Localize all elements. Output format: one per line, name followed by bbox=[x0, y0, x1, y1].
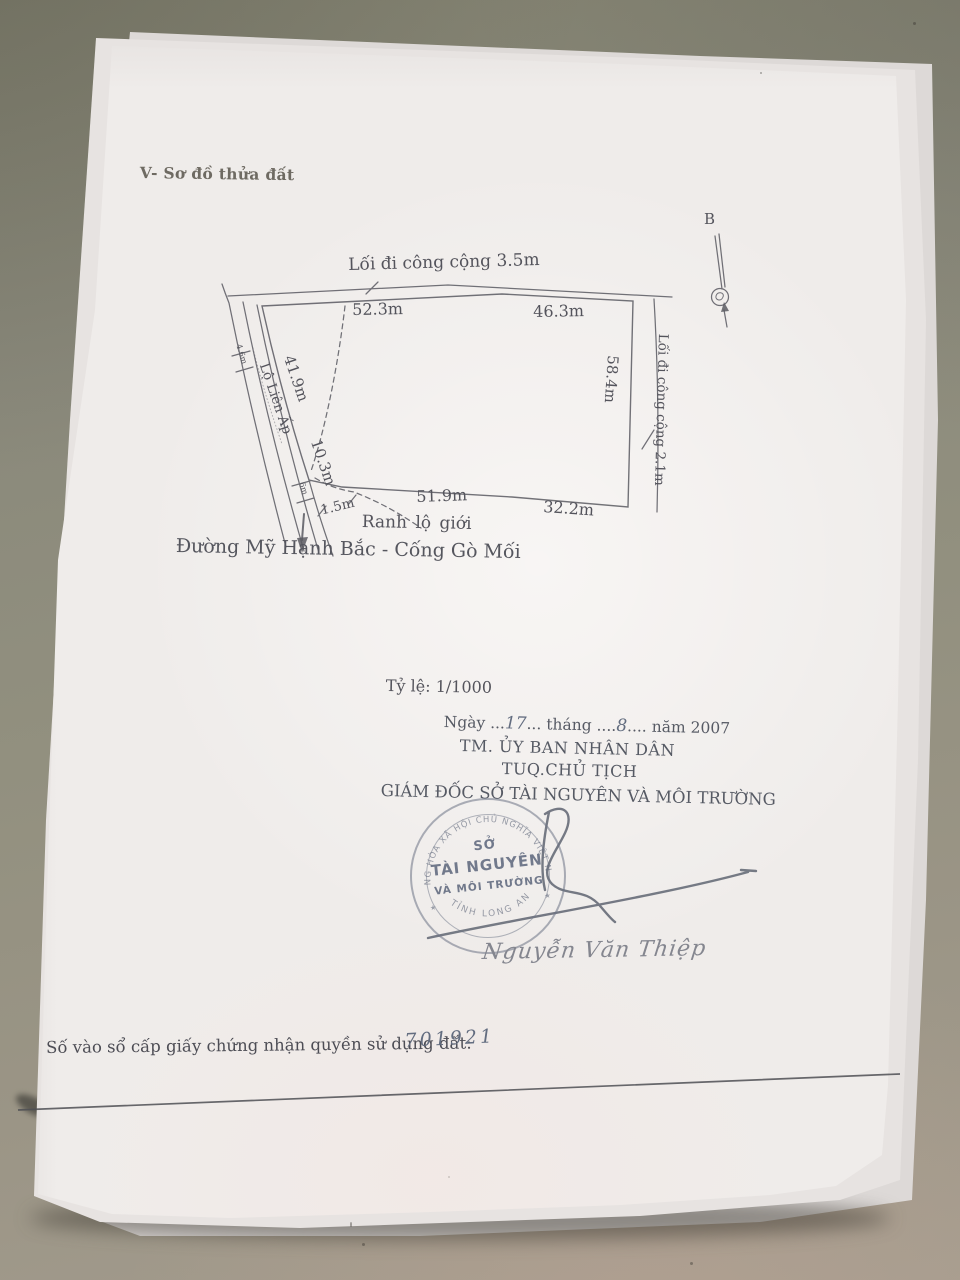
date-dots: .... bbox=[596, 716, 616, 734]
handwritten-day: 17 bbox=[505, 713, 527, 733]
official-stamp: SỞ TÀI NGUYÊN VÀ MÔI TRƯỜNG CỘNG HÒA XÃ … bbox=[402, 790, 573, 961]
stamp-arc-text: CỘNG HÒA XÃ HỘI CHỦ NGHĨA VIỆT NAM TỈNH … bbox=[402, 790, 573, 961]
compass-tail bbox=[724, 310, 727, 327]
section-title: V- Sơ đồ thửa đất bbox=[140, 163, 295, 184]
stamp-star-icon: ★ bbox=[544, 892, 551, 901]
dim-top-right: 46.3m bbox=[533, 301, 584, 321]
compass-north-label: B bbox=[704, 210, 715, 228]
road-arrow-line bbox=[302, 514, 304, 540]
compass-needle bbox=[715, 234, 725, 289]
dim-top-left: 52.3m bbox=[352, 299, 403, 319]
compass-circle bbox=[712, 289, 729, 306]
date-month-word: tháng bbox=[546, 715, 592, 734]
bottom-rule-line bbox=[18, 1074, 900, 1110]
plot-diagram bbox=[0, 0, 960, 1280]
dashed-boundary-line bbox=[311, 306, 421, 528]
svg-text:TỈNH LONG AN: TỈNH LONG AN bbox=[447, 889, 535, 923]
dim-right-side: 58.4m bbox=[601, 355, 622, 404]
stamp-star-icon: ★ bbox=[430, 904, 437, 913]
dim-bottom-right: 32.2m bbox=[543, 497, 595, 519]
date-dots: .... bbox=[627, 717, 647, 735]
scale-label: Tỷ lệ: 1/1000 bbox=[386, 676, 492, 697]
top-road-line bbox=[228, 285, 672, 297]
date-dots: ... bbox=[490, 714, 505, 732]
stamp-bottom-arc-text: TỈNH LONG AN bbox=[447, 889, 535, 923]
dim-bottom-inner: 51.9m bbox=[416, 485, 467, 506]
stamp-top-arc-text: CỘNG HÒA XÃ HỘI CHỦ NGHĨA VIỆT NAM bbox=[402, 790, 553, 888]
svg-text:CỘNG HÒA XÃ HỘI CHỦ NGHĨA VIỆT: CỘNG HÒA XÃ HỘI CHỦ NGHĨA VIỆT NAM bbox=[402, 790, 553, 888]
left-road-line-2 bbox=[243, 302, 304, 551]
boundary-label: Ranh lộ giới bbox=[362, 512, 472, 534]
compass-spiral bbox=[716, 293, 723, 300]
date-dots: ... bbox=[526, 715, 541, 733]
signer-name: Nguyễn Văn Thiệp bbox=[481, 936, 708, 965]
photo-of-document: V- Sơ đồ thửa đất B Lối đi công cộng 3.5… bbox=[0, 0, 960, 1280]
authority-chairman: TUQ.CHỦ TỊCH bbox=[502, 759, 638, 781]
date-prefix: Ngày bbox=[444, 713, 486, 732]
date-year: năm 2007 bbox=[652, 718, 731, 738]
